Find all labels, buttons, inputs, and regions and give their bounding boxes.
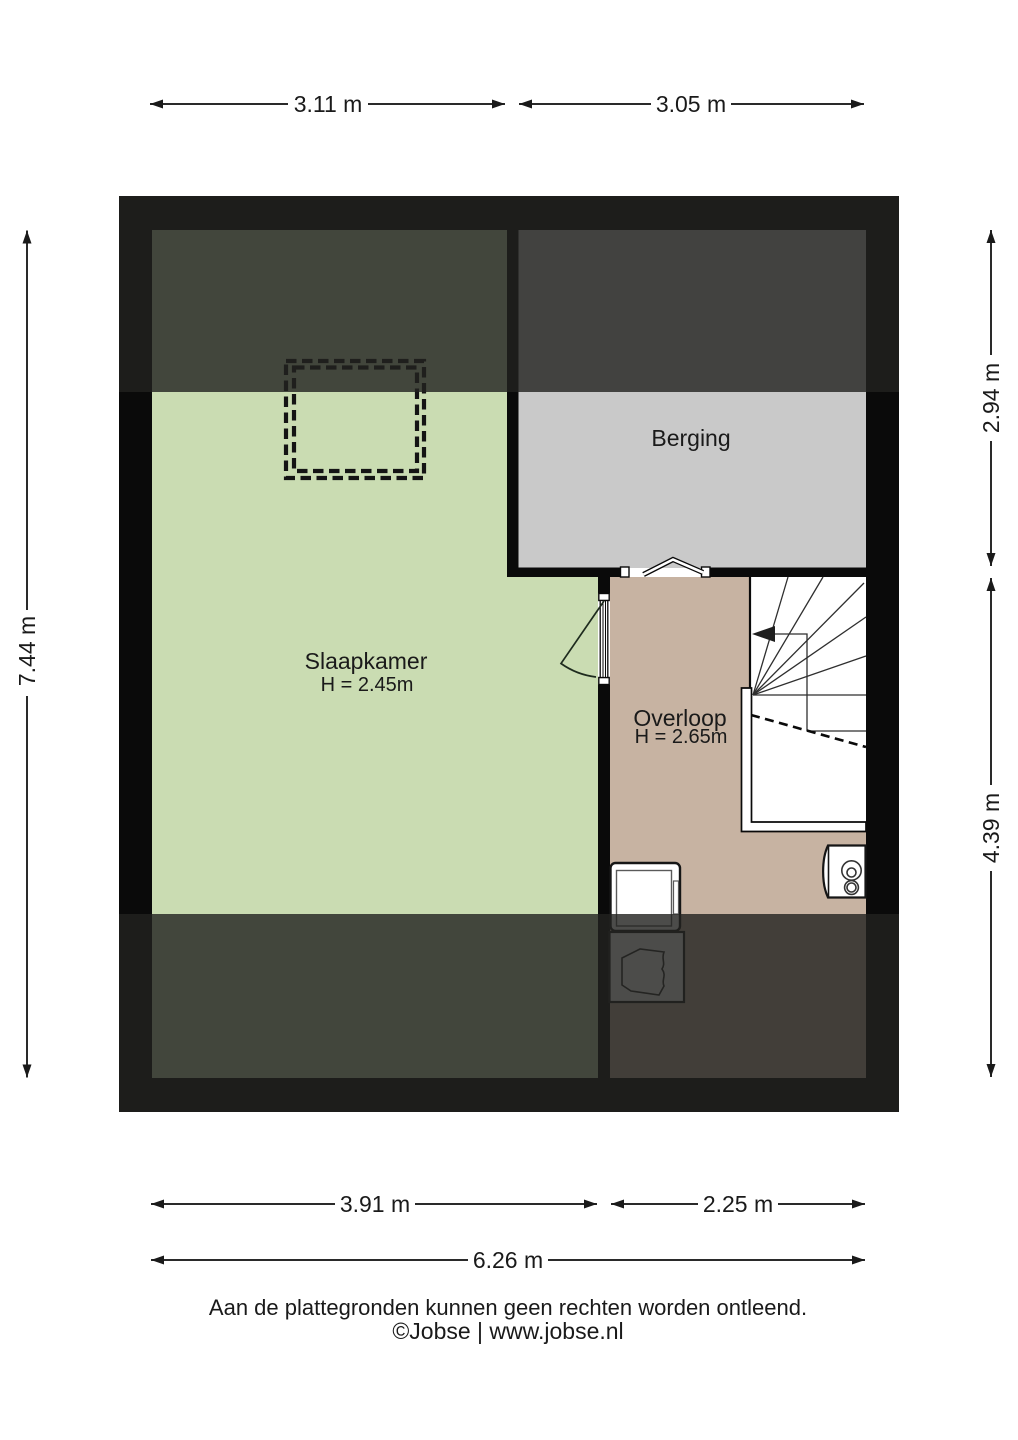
svg-text:2.94 m: 2.94 m	[978, 363, 1004, 433]
svg-text:3.91 m: 3.91 m	[340, 1191, 410, 1217]
svg-text:Slaapkamer: Slaapkamer	[305, 648, 428, 674]
svg-text:H = 2.45m: H = 2.45m	[321, 674, 414, 696]
svg-text:Aan de plattegronden kunnen ge: Aan de plattegronden kunnen geen rechten…	[209, 1295, 807, 1320]
svg-text:Berging: Berging	[651, 425, 730, 451]
svg-text:3.11 m: 3.11 m	[294, 91, 363, 117]
svg-text:2.25 m: 2.25 m	[703, 1191, 773, 1217]
svg-text:4.39 m: 4.39 m	[978, 793, 1004, 863]
svg-text:7.44 m: 7.44 m	[14, 616, 40, 686]
svg-text:6.26 m: 6.26 m	[473, 1247, 543, 1273]
svg-text:3.05 m: 3.05 m	[656, 91, 726, 117]
svg-text:©Jobse | www.jobse.nl: ©Jobse | www.jobse.nl	[392, 1318, 623, 1344]
svg-text:H = 2.65m: H = 2.65m	[635, 726, 728, 748]
